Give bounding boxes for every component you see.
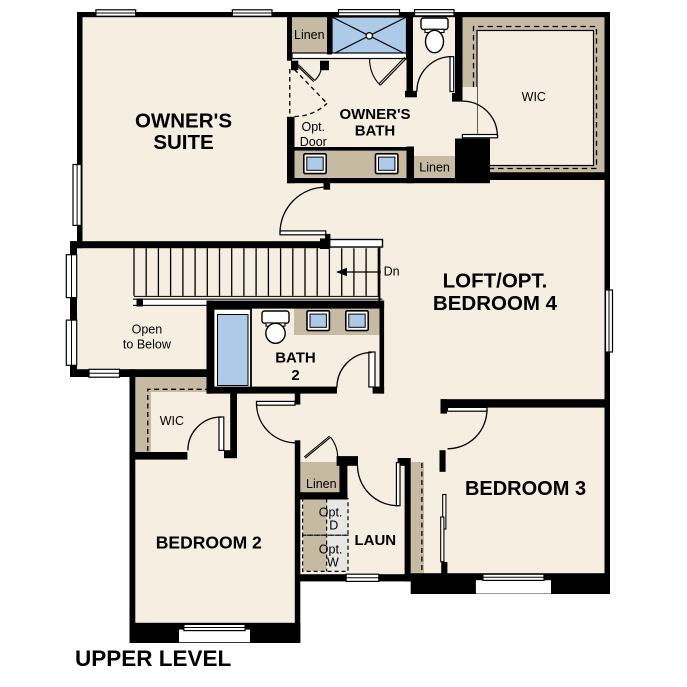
- svg-text:Opt.: Opt.: [301, 120, 325, 134]
- svg-text:BEDROOM 2: BEDROOM 2: [156, 533, 262, 553]
- svg-text:to Below: to Below: [123, 338, 172, 352]
- svg-text:OWNER'S: OWNER'S: [135, 110, 232, 133]
- svg-text:Opt.: Opt.: [319, 506, 343, 520]
- svg-text:BATH: BATH: [355, 122, 396, 139]
- svg-text:BATH: BATH: [275, 350, 316, 367]
- svg-text:LOFT/OPT.: LOFT/OPT.: [443, 270, 548, 293]
- svg-text:Linen: Linen: [419, 161, 450, 175]
- svg-text:D: D: [329, 519, 338, 533]
- svg-text:Linen: Linen: [306, 477, 337, 491]
- svg-text:WIC: WIC: [160, 414, 184, 428]
- svg-text:SUITE: SUITE: [153, 131, 213, 154]
- svg-text:W: W: [327, 556, 339, 570]
- svg-text:OWNER'S: OWNER'S: [339, 106, 410, 123]
- svg-text:Open: Open: [132, 323, 163, 337]
- svg-text:Dn: Dn: [384, 265, 400, 279]
- svg-text:LAUN: LAUN: [354, 532, 396, 549]
- svg-text:Linen: Linen: [294, 28, 325, 42]
- svg-text:2: 2: [291, 367, 299, 384]
- svg-text:Door: Door: [300, 135, 327, 149]
- svg-text:BEDROOM 3: BEDROOM 3: [465, 478, 586, 500]
- svg-text:BEDROOM 4: BEDROOM 4: [433, 292, 558, 315]
- svg-text:WIC: WIC: [522, 90, 546, 104]
- svg-text:Opt.: Opt.: [319, 542, 343, 556]
- svg-text:UPPER LEVEL: UPPER LEVEL: [75, 646, 232, 671]
